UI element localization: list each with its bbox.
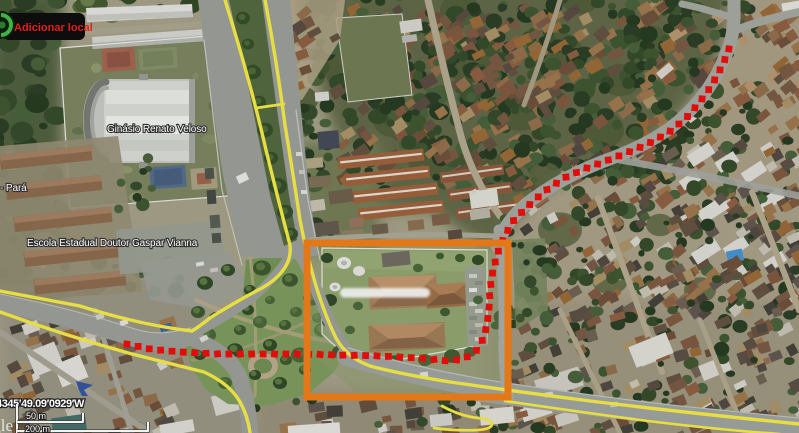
svg-text:Ginásio Renato Veloso: Ginásio Renato Veloso [107, 124, 207, 135]
svg-text:Adicionar local: Adicionar local [14, 22, 93, 34]
svg-text:4345'49.09′0929′W: 4345'49.09′0929′W [0, 398, 85, 410]
svg-text:- Pará: - Pará [0, 183, 27, 194]
svg-text:Escola Estadual Doutor Gaspar: Escola Estadual Doutor Gaspar Vianna [27, 238, 198, 249]
svg-text:50 m: 50 m [26, 411, 46, 421]
svg-text:200 m: 200 m [25, 424, 50, 433]
svg-text:Google: Google [0, 416, 13, 433]
